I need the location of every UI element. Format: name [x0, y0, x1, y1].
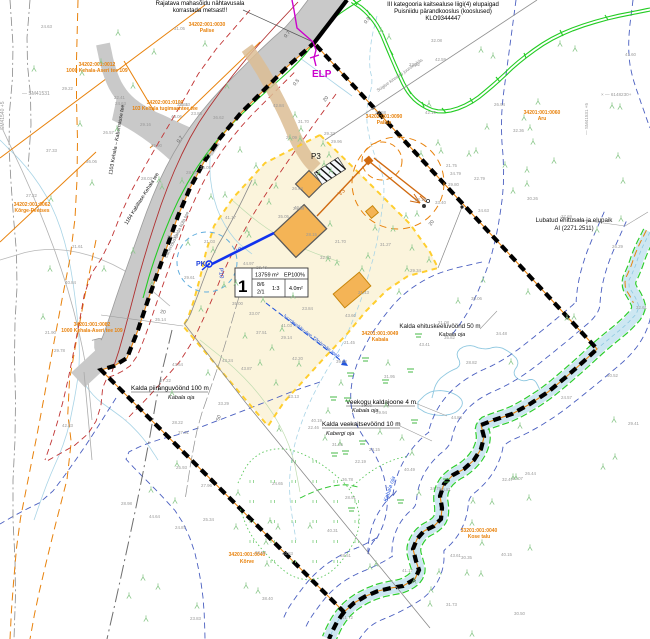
svg-text:37.51: 37.51 — [256, 330, 268, 335]
svg-text:29.33: 29.33 — [324, 131, 336, 136]
svg-text:Kose talu: Kose talu — [468, 534, 491, 540]
svg-text:— SM41531: — SM41531 — [22, 91, 50, 97]
svg-text:24.63: 24.63 — [41, 24, 53, 29]
svg-text:26.29: 26.29 — [612, 244, 624, 249]
svg-text:21.61: 21.61 — [72, 244, 84, 249]
svg-text:30.50: 30.50 — [514, 611, 526, 616]
svg-text:38.40: 38.40 — [262, 596, 274, 601]
svg-text:36.62: 36.62 — [213, 115, 225, 120]
svg-text:41.72: 41.72 — [342, 615, 354, 620]
svg-text:31.05: 31.05 — [174, 26, 186, 31]
svg-text:Kabergi oja: Kabergi oja — [326, 431, 354, 437]
svg-text:36.03: 36.03 — [361, 403, 373, 408]
svg-text:29.80: 29.80 — [448, 182, 460, 187]
svg-text:22.18: 22.18 — [415, 197, 427, 202]
svg-text:31.27: 31.27 — [380, 242, 392, 247]
svg-text:29.22: 29.22 — [62, 86, 74, 91]
svg-text:40.83: 40.83 — [282, 551, 294, 556]
svg-text:29.74: 29.74 — [167, 234, 179, 239]
svg-text:KLO9344447: KLO9344447 — [425, 16, 461, 22]
svg-text:— SM41531 +5: — SM41531 +5 — [584, 103, 589, 135]
svg-text:24.65: 24.65 — [272, 481, 284, 486]
svg-text:28.98: 28.98 — [121, 501, 133, 506]
svg-text:30.52: 30.52 — [607, 373, 619, 378]
svg-text:31.70: 31.70 — [298, 119, 310, 124]
svg-text:27.22: 27.22 — [26, 193, 38, 198]
svg-text:Veekogu kaldajoone 4 m: Veekogu kaldajoone 4 m — [346, 399, 416, 406]
svg-text:40.31: 40.31 — [327, 528, 339, 533]
svg-text:43.60: 43.60 — [345, 313, 357, 318]
svg-text:Palise: Palise — [377, 120, 392, 126]
svg-text:29.41: 29.41 — [628, 421, 640, 426]
svg-text:21.70: 21.70 — [335, 239, 347, 244]
svg-text:26.44: 26.44 — [525, 471, 537, 476]
svg-text:22.19: 22.19 — [355, 459, 367, 464]
svg-text:25.93: 25.93 — [176, 465, 188, 470]
svg-text:41.17: 41.17 — [402, 568, 414, 573]
svg-text:29.16: 29.16 — [140, 122, 152, 127]
svg-text:43.61: 43.61 — [450, 553, 462, 558]
svg-text:35.05: 35.05 — [278, 214, 290, 219]
svg-text:29.61: 29.61 — [184, 275, 196, 280]
svg-text:Aru: Aru — [538, 116, 547, 122]
svg-text:30.26: 30.26 — [527, 196, 539, 201]
svg-text:21.03: 21.03 — [204, 239, 216, 244]
svg-text:36.06: 36.06 — [86, 159, 98, 164]
svg-text:29.34: 29.34 — [410, 268, 422, 273]
svg-text:23.84: 23.84 — [302, 306, 314, 311]
svg-text:28.15: 28.15 — [306, 232, 318, 237]
svg-text:35.00: 35.00 — [232, 301, 244, 306]
svg-text:29.94: 29.94 — [376, 410, 388, 415]
svg-text:Lubatud ehitusala ja elupaik: Lubatud ehitusala ja elupaik — [536, 217, 614, 224]
svg-text:21.75: 21.75 — [446, 163, 458, 168]
svg-text:39.06: 39.06 — [471, 296, 483, 301]
svg-text:33.13: 33.13 — [288, 394, 300, 399]
svg-text:34.48: 34.48 — [496, 331, 508, 336]
svg-text:25.90: 25.90 — [151, 143, 163, 148]
svg-text:33.65: 33.65 — [177, 102, 189, 107]
svg-text:2/1: 2/1 — [257, 290, 265, 296]
svg-text:44.83: 44.83 — [451, 415, 463, 420]
svg-text:37.69: 37.69 — [561, 214, 573, 219]
svg-text:Rajatava mahasõidu nähtavusala: Rajatava mahasõidu nähtavusala — [156, 1, 245, 7]
svg-text:4.0m²: 4.0m² — [289, 286, 303, 292]
svg-text:23.83: 23.83 — [191, 111, 203, 116]
svg-text:27.96: 27.96 — [201, 483, 213, 488]
svg-text:31.73: 31.73 — [446, 602, 458, 607]
svg-text:Kabala: Kabala — [372, 337, 389, 343]
svg-text:28.22: 28.22 — [172, 420, 184, 425]
svg-text:24.63: 24.63 — [115, 101, 127, 106]
svg-text:AI (2271.2511): AI (2271.2511) — [554, 226, 593, 232]
svg-text:22.46: 22.46 — [308, 425, 320, 430]
svg-text:Kabala oja: Kabala oja — [168, 395, 194, 401]
svg-text:Puisniidu pärandkooslus (koosl: Puisniidu pärandkooslus (kooslused) — [394, 9, 492, 15]
svg-text:22.59: 22.59 — [346, 422, 358, 427]
svg-text:23.15: 23.15 — [369, 447, 381, 452]
svg-text:29.78: 29.78 — [54, 348, 66, 353]
svg-text:27.22: 27.22 — [160, 378, 172, 383]
svg-text:20: 20 — [160, 309, 167, 316]
svg-text:32.50: 32.50 — [320, 255, 332, 260]
svg-text:28.03: 28.03 — [141, 176, 153, 181]
svg-text:42.83: 42.83 — [62, 423, 74, 428]
svg-text:1:3: 1:3 — [272, 286, 280, 292]
svg-text:1000 Kehala-Aseri tee 109: 1000 Kehala-Aseri tee 109 — [61, 328, 123, 334]
svg-text:29.14: 29.14 — [281, 335, 293, 340]
svg-text:32.61: 32.61 — [636, 305, 648, 310]
svg-text:43.64: 43.64 — [172, 362, 184, 367]
svg-text:40.84: 40.84 — [65, 280, 77, 285]
svg-text:28.82: 28.82 — [466, 360, 478, 365]
svg-text:33.40: 33.40 — [435, 200, 447, 205]
svg-text:41.03: 41.03 — [281, 323, 293, 328]
svg-text:39.82: 39.82 — [336, 359, 348, 364]
svg-text:22.93: 22.93 — [255, 550, 267, 555]
svg-text:40.49: 40.49 — [404, 467, 416, 472]
svg-text:43.87: 43.87 — [241, 366, 253, 371]
svg-text:SM41540 +5: SM41540 +5 — [0, 101, 6, 130]
svg-text:42.84: 42.84 — [273, 103, 285, 108]
svg-text:40.19: 40.19 — [311, 418, 323, 423]
svg-text:43.06: 43.06 — [171, 114, 183, 119]
svg-text:25.34: 25.34 — [203, 517, 215, 522]
svg-text:41.60: 41.60 — [625, 52, 637, 57]
svg-text:Kalda veekaitsevöönd 10 m: Kalda veekaitsevöönd 10 m — [322, 421, 401, 428]
svg-text:38.51: 38.51 — [340, 553, 352, 558]
svg-text:24.87: 24.87 — [175, 525, 187, 530]
svg-text:34.79: 34.79 — [450, 171, 462, 176]
svg-text:24.57: 24.57 — [561, 395, 573, 400]
svg-text:31.95: 31.95 — [384, 374, 396, 379]
svg-text:26.57: 26.57 — [103, 130, 115, 135]
svg-text:21.45: 21.45 — [344, 340, 356, 345]
svg-text:23.48: 23.48 — [256, 265, 268, 270]
svg-text:32.08: 32.08 — [431, 38, 443, 43]
svg-text:42.59: 42.59 — [435, 57, 447, 62]
svg-text:36.78: 36.78 — [342, 477, 354, 482]
svg-text:21.90: 21.90 — [45, 330, 57, 335]
svg-text:13759 m²: 13759 m² — [255, 273, 279, 279]
svg-text:26.04: 26.04 — [292, 186, 304, 191]
svg-text:40.15: 40.15 — [501, 552, 513, 557]
svg-text:21.08: 21.08 — [438, 320, 450, 325]
svg-text:28.03: 28.03 — [186, 170, 198, 175]
svg-text:35.14: 35.14 — [155, 317, 167, 322]
svg-text:33.29: 33.29 — [218, 401, 230, 406]
svg-text:EP100%: EP100% — [284, 273, 305, 279]
svg-text:P10: P10 — [217, 268, 224, 280]
svg-text:III kategooria kaitsealuse lii: III kategooria kaitsealuse liigi(4) elup… — [387, 2, 499, 8]
svg-text:21.43: 21.43 — [358, 290, 370, 295]
svg-text:1000 Kehala-Aseri tee 109: 1000 Kehala-Aseri tee 109 — [66, 68, 128, 74]
svg-text:37.61: 37.61 — [178, 430, 190, 435]
svg-text:33.07: 33.07 — [249, 311, 261, 316]
svg-text:42.19: 42.19 — [425, 110, 437, 115]
svg-text:ELP: ELP — [312, 69, 332, 80]
svg-text:22.79: 22.79 — [474, 176, 486, 181]
svg-text:24.38: 24.38 — [293, 206, 305, 211]
svg-text:43.24: 43.24 — [222, 358, 234, 363]
svg-text:korrastada metsast!!: korrastada metsast!! — [173, 8, 228, 14]
svg-text:1: 1 — [238, 277, 247, 296]
svg-text:Kõrve: Kõrve — [240, 559, 254, 565]
svg-text:22.62: 22.62 — [409, 62, 421, 67]
svg-text:44.64: 44.64 — [149, 514, 161, 519]
svg-text:Kalda piiranguvöönd 100 m: Kalda piiranguvöönd 100 m — [131, 385, 209, 392]
svg-text:Kabala oja: Kabala oja — [352, 408, 378, 414]
svg-text:22.41: 22.41 — [114, 95, 126, 100]
svg-text:43.41: 43.41 — [419, 342, 431, 347]
svg-text:35.82: 35.82 — [444, 335, 456, 340]
svg-text:P3: P3 — [311, 152, 321, 161]
svg-text:× — 6148230+: × — 6148230+ — [601, 92, 632, 97]
svg-text:35.81: 35.81 — [440, 487, 452, 492]
svg-text:41.17: 41.17 — [225, 215, 237, 220]
svg-text:23.83: 23.83 — [190, 616, 202, 621]
svg-text:30.35: 30.35 — [461, 555, 473, 560]
svg-text:33.58: 33.58 — [375, 110, 387, 115]
svg-text:32.36: 32.36 — [513, 128, 525, 133]
svg-text:34.63: 34.63 — [478, 208, 490, 213]
svg-text:Kõrge-Peetses: Kõrge-Peetses — [14, 208, 49, 214]
svg-text:26.94: 26.94 — [494, 102, 506, 107]
svg-text:44.97: 44.97 — [243, 261, 255, 266]
svg-text:PK: PK — [196, 261, 206, 268]
svg-text:8/6: 8/6 — [257, 282, 265, 288]
svg-text:Palise: Palise — [200, 28, 215, 34]
svg-text:35.05: 35.05 — [200, 165, 212, 170]
svg-text:37.33: 37.33 — [46, 148, 58, 153]
svg-text:29.96: 29.96 — [331, 139, 343, 144]
svg-text:42.20: 42.20 — [292, 356, 304, 361]
